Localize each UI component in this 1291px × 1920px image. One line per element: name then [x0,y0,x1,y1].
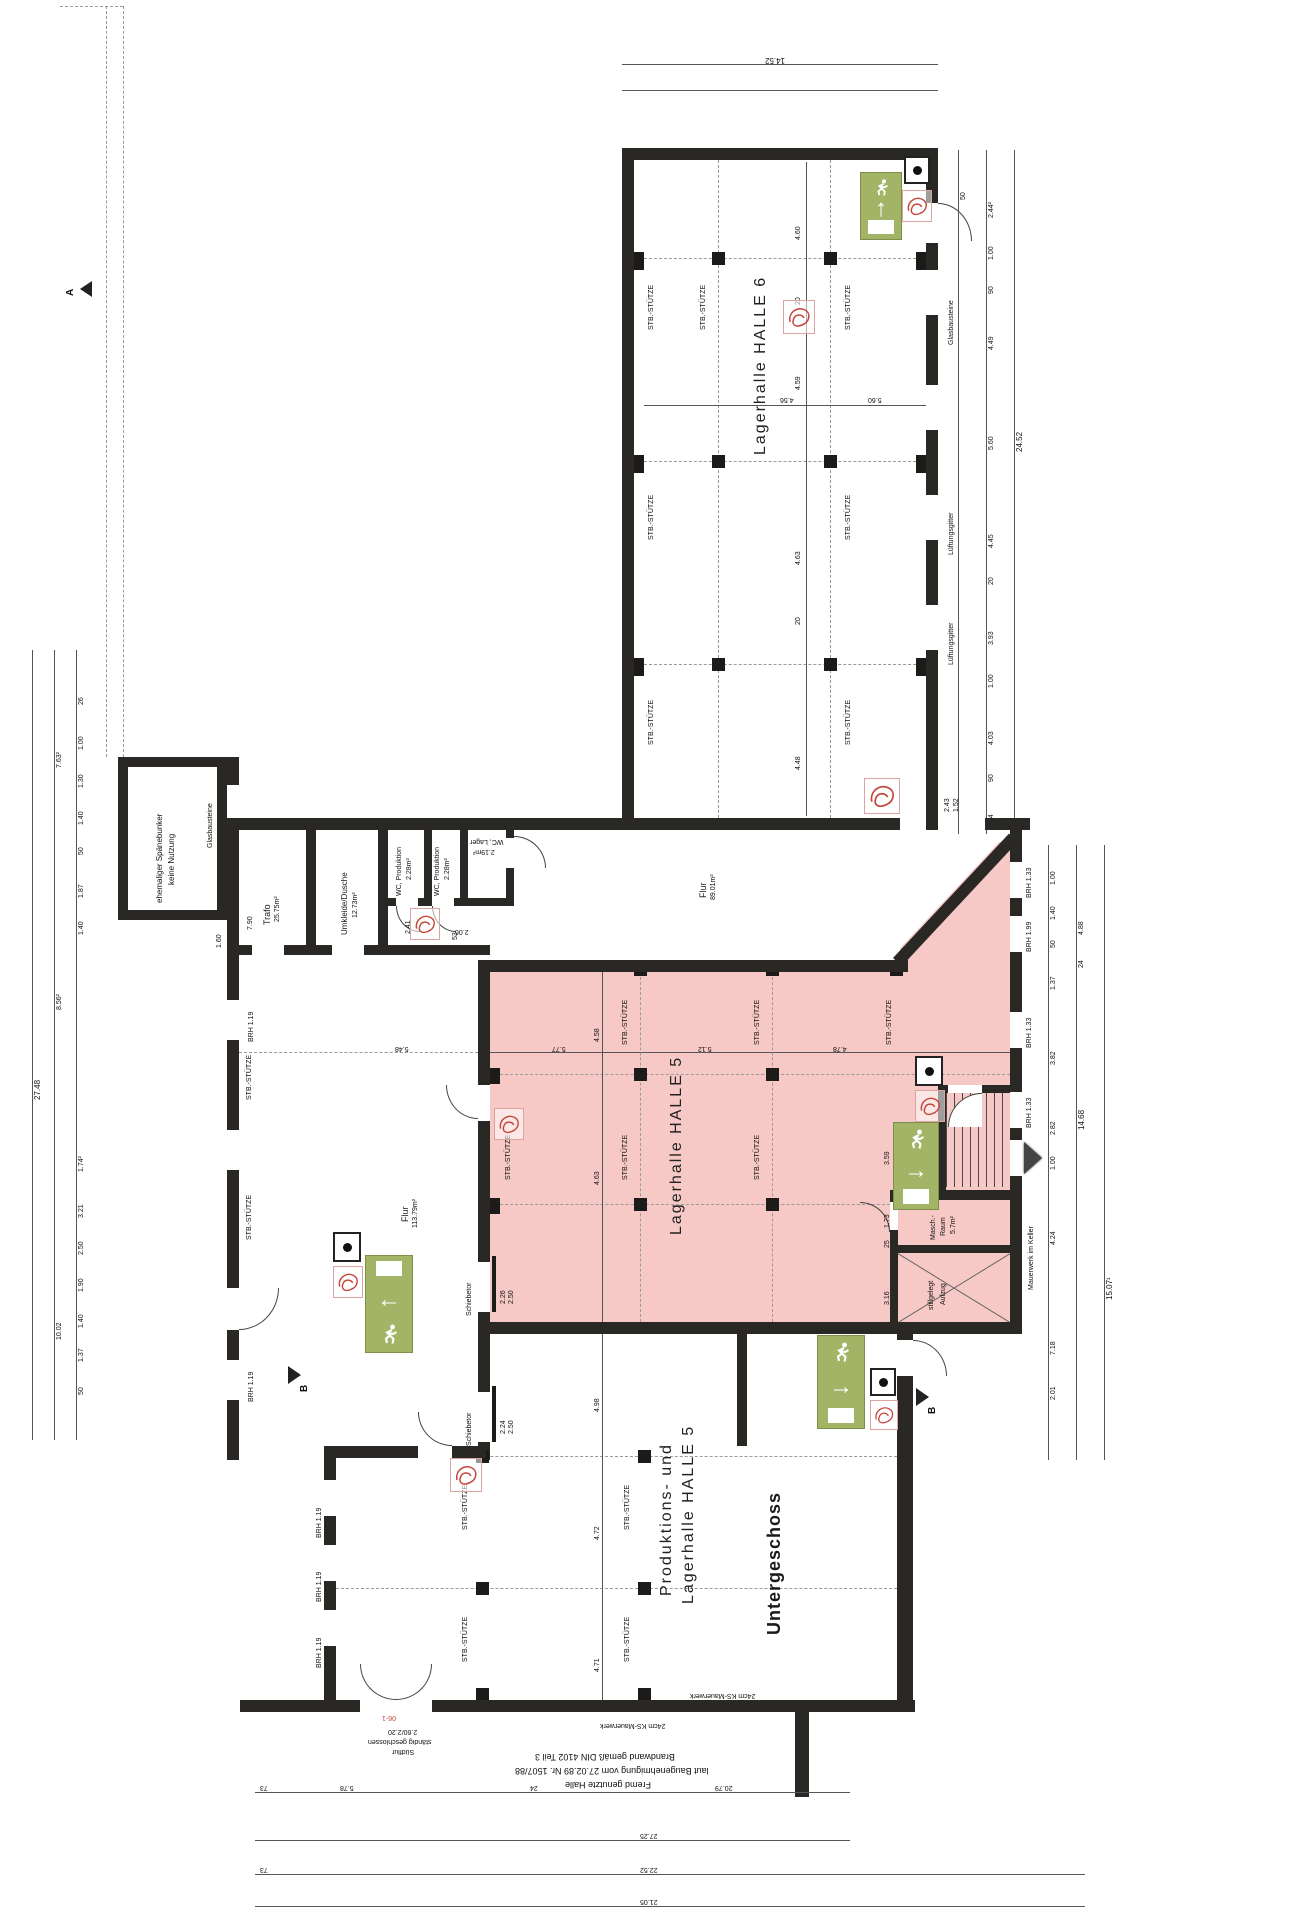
dim-label: 3.16 [884,1291,891,1305]
door-opening [506,838,514,868]
dim-label: 1.30 [78,774,85,788]
aufzug-label: stillgelegt [928,1281,935,1310]
dim-label: 1.00 [78,736,85,750]
dim-label: 7.90 [247,916,254,930]
sliding-gate-label: Schiebetor [466,1413,473,1446]
prod-halle-label: Produktions- und [658,1443,676,1596]
door-swing-arc [938,203,972,241]
wall [890,1253,898,1322]
grid-line [336,1588,897,1589]
dim-label: 50 [960,192,967,200]
wall [484,960,908,972]
window-sill-label: BRH 1.99 [1026,922,1033,952]
wall-pilaster [634,252,644,270]
door-swing-arc [360,1664,396,1700]
door-opening [897,1340,913,1376]
column [638,1450,651,1463]
wall [118,757,128,920]
door-swing-arc [396,1664,432,1700]
dim-line [958,150,959,834]
approval-stamp [870,1400,898,1430]
facade-label: Glasbausteine [207,803,214,848]
column-label: STB.-STÜTZE [648,495,655,540]
dim-label: 22.52 [640,1866,658,1873]
dim-label: 4.49 [988,336,995,350]
wall [1010,830,1022,1334]
dim-line [602,972,603,1322]
dim-label: 5.48 [395,1045,409,1052]
dim-line [54,650,55,1440]
door-opening [432,898,454,906]
dim-label: 10.02 [56,1322,63,1340]
window-opening [227,1130,239,1170]
dim-label: 5.60 [988,436,995,450]
dim-label: 7.18 [1050,1341,1057,1355]
dim-label: 24 [530,1784,538,1791]
window-opening [926,385,938,430]
exit-sign: ← [365,1255,413,1353]
halle6-label: Lagerhalle HALLE 6 [752,276,770,455]
exit-door-panel [376,1261,402,1276]
window-opening [926,495,938,540]
column [766,1198,779,1211]
dim-label: 2.50 [78,1241,85,1255]
dim-label: 5.77 [552,1045,566,1052]
dim-line [255,1906,1085,1907]
door-opening [227,1288,239,1330]
stamp-scribble-icon [916,1091,944,1121]
facade-label: Lüftungsgitter [948,623,955,665]
dot-icon [925,1067,934,1076]
dim-label: 2.06 [455,928,469,935]
wall-pilaster [916,252,926,270]
door-note: Südflur [392,1748,414,1755]
door-note: 2.60/2.20 [388,1728,417,1735]
floor-plan-sheet: A 4.60 20 4.59 4.63 20 4.48 4.56 5.60 ST… [0,0,1291,1920]
plan-note: laut Baugenehmigung vom 27.02.89 Nr. 150… [515,1766,709,1775]
stamp-scribble-icon [495,1109,523,1139]
window-opening [227,1360,239,1400]
dim-line [76,650,77,1440]
section-marker-b-label: B [300,1385,310,1392]
wall [227,818,622,830]
column-label: STB.-STÜTZE [462,1617,469,1662]
door-opening [252,945,284,955]
window-opening [324,1610,336,1646]
dim-label: 4.60 [795,226,802,240]
dim-line [490,1052,1010,1053]
grid-line [644,664,926,665]
boundary-dashed-line [60,6,123,7]
dim-line [1104,845,1105,1460]
dim-label: 4.71 [594,1658,601,1672]
dim-line [986,150,987,834]
sliding-gate-leaf [492,1386,496,1442]
dim-label: 2.01 [1050,1386,1057,1400]
masch-area: 5.7m² [950,1216,957,1234]
boundary-dashed-line [123,6,124,757]
wall [622,148,634,830]
section-marker-b-icon [916,1388,929,1406]
wall [897,1334,913,1712]
door-opening [1010,1140,1022,1176]
trafo-label: Trafo [262,904,272,925]
sliding-gate-leaf [492,1256,496,1312]
wall [306,830,316,955]
grid-line [640,972,641,1322]
arrow-right-icon: → [904,1160,928,1182]
approval-stamp [915,1090,945,1122]
dim-label: 15.07¹ [1106,1277,1114,1300]
dim-label: 1.40 [78,921,85,935]
grid-line [772,972,773,1322]
window-sill-label: BRH 1.19 [316,1572,323,1602]
wall [460,830,468,906]
window-opening [1010,862,1022,898]
window-opening [324,1545,336,1581]
dim-label: 4.63 [594,1171,601,1185]
door-opening [478,1085,490,1121]
facade-label: Glasbausteine [948,300,955,345]
sliding-gate-label: Schiebetor [466,1283,473,1316]
dim-label: 73 [260,1866,268,1873]
section-marker-b-label: B [928,1407,938,1414]
running-man-icon [903,1128,929,1152]
dim-label: 1.60 [216,934,223,948]
dim-label: 1.40 [78,1314,85,1328]
grid-line [644,258,926,259]
dim-line [32,650,33,1440]
dim-label: 4.59 [795,376,802,390]
floor-title: Untergeschoss [764,1492,785,1635]
wc-area: 2.28m² [406,858,413,880]
umkleide-area: 12.73m² [352,892,359,918]
dim-label: 8.56² [56,994,63,1010]
dim-line [1014,150,1015,834]
dim-label: 4.45 [988,534,995,548]
dim-label: 1.74² [78,1156,85,1172]
stamp-scribble-icon [871,1401,897,1429]
approval-stamp [333,1266,363,1298]
grid-line [500,1204,890,1205]
column-label: STB.-STÜTZE [622,1135,629,1180]
wall-pilaster [634,658,644,676]
door-swing-arc [913,1340,947,1376]
dim-line [806,162,807,816]
dim-label: 3.21 [78,1204,85,1218]
dim-label: 4.58 [594,1028,601,1042]
column [712,455,725,468]
window-opening [324,1480,336,1516]
wall [118,757,227,767]
wall-pilaster [476,1688,489,1700]
wall-pilaster [916,658,926,676]
wall [622,148,938,160]
dim-label: 5.12 [698,1045,712,1052]
dot-icon [913,166,922,175]
wc-area: 2.19m² [473,848,495,855]
running-man-icon [376,1323,402,1347]
stamp-scribble-icon [903,191,931,221]
dim-label: 2.44² [988,202,995,218]
wall-pilaster [490,1068,500,1084]
dim-line [255,1840,850,1841]
wall [240,1700,915,1712]
column-label: STB.-STÜTZE [505,1135,512,1180]
dim-label: 2.50 [508,1290,515,1304]
wall-material-label: 24cm KS-Mauerwerk [600,1722,665,1729]
wall [227,757,239,1460]
dim-label: 4.56 [780,396,794,403]
dim-label: 2.26 [500,1290,507,1304]
window-sill-label: BRH 1.19 [248,1012,255,1042]
dim-label: 3.93 [988,631,995,645]
column [638,1582,651,1595]
dim-label: 5.60 [868,396,882,403]
flur1-area: 89.01m² [710,874,717,900]
column [634,1198,647,1211]
door-opening [396,898,418,906]
wall-material-label: 24cm KS-Mauerwerk [690,1692,755,1699]
grid-line [239,1052,478,1053]
door-swing-arc [446,1085,478,1119]
dim-label: 4.88 [1078,921,1085,935]
column-label: STB.-STÜTZE [845,495,852,540]
column [824,455,837,468]
wall [737,1334,747,1446]
column-label: STB.-STÜTZE [246,1055,253,1100]
halle5-label: Lagerhalle HALLE 5 [668,1056,686,1235]
dim-label: 1.00 [1050,1156,1057,1170]
column-label: STB.-STÜTZE [754,1135,761,1180]
window-opening [1010,916,1022,952]
window-sill-label: BRH 1.33 [1026,1018,1033,1048]
dim-label: 90 [988,286,995,294]
dim-label: 1.37 [1050,976,1057,990]
dim-label: 5.78 [340,1784,354,1791]
wall [985,818,1030,830]
arrow-right-icon: → [829,1376,853,1398]
column-label: STB.-STÜTZE [886,1000,893,1045]
dim-label: 21.05 [640,1898,658,1905]
approval-stamp [494,1108,524,1140]
arrow-left-icon: ← [377,1289,401,1311]
approval-stamp [783,300,815,334]
wall [890,1245,1010,1253]
window-opening [1010,1012,1022,1048]
dim-label: 3.82 [1050,1051,1057,1065]
dim-label: 4.24 [1050,1231,1057,1245]
column-label: STB.-STÜTZE [648,700,655,745]
wc-label: WC, Produktion [396,847,403,896]
column [712,252,725,265]
approval-stamp [450,1458,482,1492]
door-swing-arc [418,1412,452,1446]
dim-label: 4.48 [795,756,802,770]
wc-label: WC, Lager [470,838,503,845]
exit-sign: → [893,1122,939,1210]
column-label: STB.-STÜTZE [700,285,707,330]
facade-label: Mauerwerk im Keller [1028,1226,1035,1290]
aufzug-label: Aufzug [940,1283,947,1305]
stamp-scribble-icon [784,301,814,333]
boundary-dashed-line [106,6,107,757]
column-label: STB.-STÜTZE [624,1617,631,1662]
door-swing-arc [514,836,546,868]
dim-label: 1.73 [884,1214,891,1228]
dim-label: 4.98 [594,1398,601,1412]
dim-label: 27.48 [34,1080,42,1100]
plan-note: Fremd genutzte Halle [565,1780,651,1789]
dim-label: 90 [988,774,995,782]
approval-stamp [410,908,440,940]
door-tag: 06-1 [382,1714,396,1721]
dim-label: 4.78 [833,1045,847,1052]
column-label: STB.-STÜTZE [246,1195,253,1240]
door-closer-symbol [870,1368,896,1396]
dim-label: 20.79 [715,1784,733,1791]
dim-label: 1.00 [988,246,995,260]
wall [118,910,227,920]
dim-label: 1.40 [78,811,85,825]
wall-pilaster [490,1198,500,1214]
column-label: STB.-STÜTZE [754,1000,761,1045]
dim-label: 7.63² [56,752,63,768]
sliding-gate-opening [478,1392,490,1442]
window-opening [926,270,938,315]
dim-label: 1.40 [1050,906,1057,920]
column [476,1582,489,1595]
door-closer-symbol [915,1056,943,1086]
window-sill-label: BRH 1.19 [316,1508,323,1538]
dim-label: 73 [260,1784,268,1791]
dim-label: 27.25 [640,1832,658,1839]
flur2-label: Flur [400,1207,410,1223]
dim-label: 50 [78,847,85,855]
dim-label: 14.52 [765,56,785,64]
double-door-opening [360,1700,432,1712]
wall-pilaster [638,1688,651,1700]
plan-note: Brandwand gemäß DIN 4102 Teil 3 [535,1752,675,1761]
exit-direction-chevron-icon [1024,1142,1042,1174]
window-sill-label: BRH 1.33 [1026,868,1033,898]
column [766,1068,779,1081]
column [824,658,837,671]
dim-label: 1.00 [988,674,995,688]
door-opening [948,1085,982,1093]
dim-label: 50 [78,1387,85,1395]
window-sill-label: BRH 1.19 [248,1372,255,1402]
dim-line [1048,845,1049,1460]
dim-label: 25 [884,1240,891,1248]
facade-label: Lüftungsgitter [948,513,955,555]
flur1-label: Flur [698,883,708,899]
wall-pilaster [634,455,644,473]
dim-label: 4.72 [594,1526,601,1540]
wall [424,830,432,906]
window-sill-label: BRH 1.19 [316,1638,323,1668]
dim-label: 2.50 [508,1420,515,1434]
dim-label: 20 [795,617,802,625]
flur2-area: 113.79m² [412,1199,419,1228]
approval-stamp [902,190,932,222]
dim-label: 3.59 [884,1151,891,1165]
exit-door-panel [868,220,894,234]
bunker-label: ehemaliger Spänebunker [156,814,164,903]
window-opening [1010,1092,1022,1128]
dot-icon [879,1378,888,1387]
prod-halle-label: Lagerhalle HALLE 5 [680,1425,698,1604]
column-label: STB.-STÜTZE [845,700,852,745]
dim-line [644,405,926,406]
dim-line [1076,845,1077,1460]
door-closer-symbol [333,1232,361,1262]
exit-sign: → [817,1335,865,1429]
bunker-label: keine Nutzung [168,834,176,885]
sliding-gate-opening [478,1262,490,1312]
wall [330,1446,486,1458]
section-marker-a-label: A [66,289,76,296]
column-label: STB.-STÜTZE [648,285,655,330]
approval-stamp [864,778,900,814]
dim-label: 20 [988,577,995,585]
dim-label: 24.52 [1016,432,1024,452]
masch-label: Raum [940,1217,947,1236]
dot-icon [343,1243,352,1252]
wall [378,830,388,955]
dim-line [255,1792,850,1793]
section-marker-b-icon [288,1366,301,1384]
arrow-up-icon: ↑ [875,198,887,220]
stamp-scribble-icon [411,909,439,939]
window-sill-label: BRH 1.33 [1026,1098,1033,1128]
window-opening [926,605,938,650]
column [824,252,837,265]
wall [622,818,900,830]
dim-label: 4.63 [795,551,802,565]
wc-label: WC, Produktion [434,847,441,896]
dim-label: 2.24 [500,1420,507,1434]
dim-label: 1.37 [78,1348,85,1362]
grid-line [644,461,926,462]
dim-label: 2.82 [1050,1121,1057,1135]
dim-line [255,1874,1085,1875]
wall [926,148,938,830]
column [634,1068,647,1081]
wall-pilaster [916,455,926,473]
dim-label: 1.00 [1050,871,1057,885]
stamp-scribble-icon [451,1459,481,1491]
door-opening [332,945,364,955]
stamp-scribble-icon [865,779,899,813]
dim-label: 14.68 [1078,1110,1086,1130]
exit-door-panel [828,1408,854,1423]
trafo-area: 25.75m² [274,896,281,922]
masch-label: Masch.- [930,1215,937,1240]
dim-line [622,90,938,91]
exit-door-panel [903,1189,929,1204]
wall [478,1322,1022,1334]
door-note: ständig geschlossen [368,1738,431,1745]
door-closer-symbol [904,156,930,184]
window-opening [227,1000,239,1040]
column-label: STB.-STÜTZE [622,1000,629,1045]
running-man-icon [828,1341,854,1365]
dim-label: 2.43 [944,798,951,812]
exit-sign: ↑ [860,172,902,240]
dim-label: 1.87 [78,884,85,898]
column-label: STB.-STÜTZE [624,1485,631,1530]
